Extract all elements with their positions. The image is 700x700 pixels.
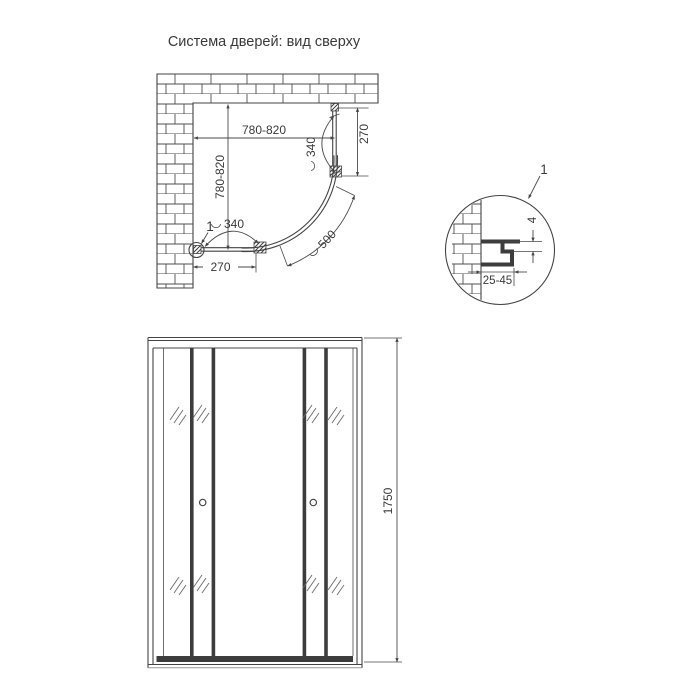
detail-callout-label: 1: [540, 162, 548, 177]
callout-leader: [202, 233, 209, 244]
dim-width: 780-820: [194, 123, 335, 138]
dim-door-top: 340: [304, 114, 341, 175]
dim-door-top-label: 340: [304, 137, 318, 157]
wall-profile-block-top: [331, 104, 339, 112]
dim-range-label: 25-45: [483, 275, 512, 287]
handle-knob-left: [200, 499, 206, 505]
dim-height-label: 780-820: [213, 155, 227, 199]
top-view: 1 780-820 780-820 270 270: [157, 74, 378, 288]
wall-profile-block-left: [194, 246, 202, 254]
fixed-panel-right: [330, 104, 342, 178]
detail-view: 4 25-45 1: [446, 162, 555, 305]
detail-brick-wall: [452, 196, 481, 304]
brick-wall-top: [193, 74, 378, 103]
dim-radius: 500: [280, 187, 355, 267]
door-stile: [190, 348, 194, 656]
door-stile: [324, 348, 328, 656]
bottom-rail: [157, 656, 354, 662]
door-stile: [212, 348, 216, 656]
dim-offset-top: 270: [337, 108, 371, 176]
dim-front-height: 1750: [364, 338, 402, 662]
arc-length-symbol: [311, 162, 315, 171]
drawing-title: Система дверей: вид сверху: [168, 34, 361, 50]
drawing-svg: Система дверей: вид сверху: [0, 0, 700, 700]
wall-profile-section: [481, 240, 520, 267]
dim-offset-bottom: 270: [194, 253, 257, 274]
door-stile: [303, 348, 307, 656]
dim-offset-top-label: 270: [357, 124, 371, 144]
brick-wall-left: [157, 74, 193, 288]
glass-reflection-marks: [170, 405, 344, 595]
handle-knob-right: [310, 499, 316, 505]
dim-width-label: 780-820: [242, 123, 286, 137]
dim-gap-label: 4: [527, 216, 539, 223]
frame: [148, 338, 362, 669]
dim-front-height-label: 1750: [381, 487, 395, 514]
front-view: 1750: [148, 338, 402, 669]
technical-drawing-page: Система дверей: вид сверху: [0, 0, 700, 700]
detail-leader: 1: [529, 162, 548, 199]
dim-offset-bottom-label: 270: [210, 260, 230, 274]
door-panels: [164, 348, 354, 656]
dim-door-bottom-label: 340: [224, 217, 244, 231]
